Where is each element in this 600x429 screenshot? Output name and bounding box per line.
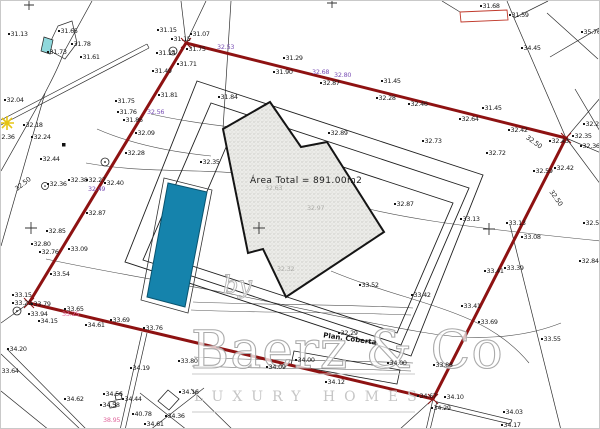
- star-symbol: [1, 116, 14, 130]
- watermark-tagline: LUXURY HOMES: [194, 389, 426, 405]
- building-footprint: [223, 102, 384, 297]
- site-plan-drawing: by Baerz & Co LUXURY HOMES: [1, 1, 600, 429]
- swimming-pool: [147, 183, 207, 307]
- watermark-by: by: [223, 271, 252, 299]
- watermark-name: Baerz & Co: [191, 321, 504, 381]
- site-plan: by Baerz & Co LUXURY HOMES 31.1331.6531.…: [0, 0, 600, 429]
- red-marker-rect: [460, 10, 508, 22]
- area-total-label: Área Total = 891.00m2: [250, 176, 362, 186]
